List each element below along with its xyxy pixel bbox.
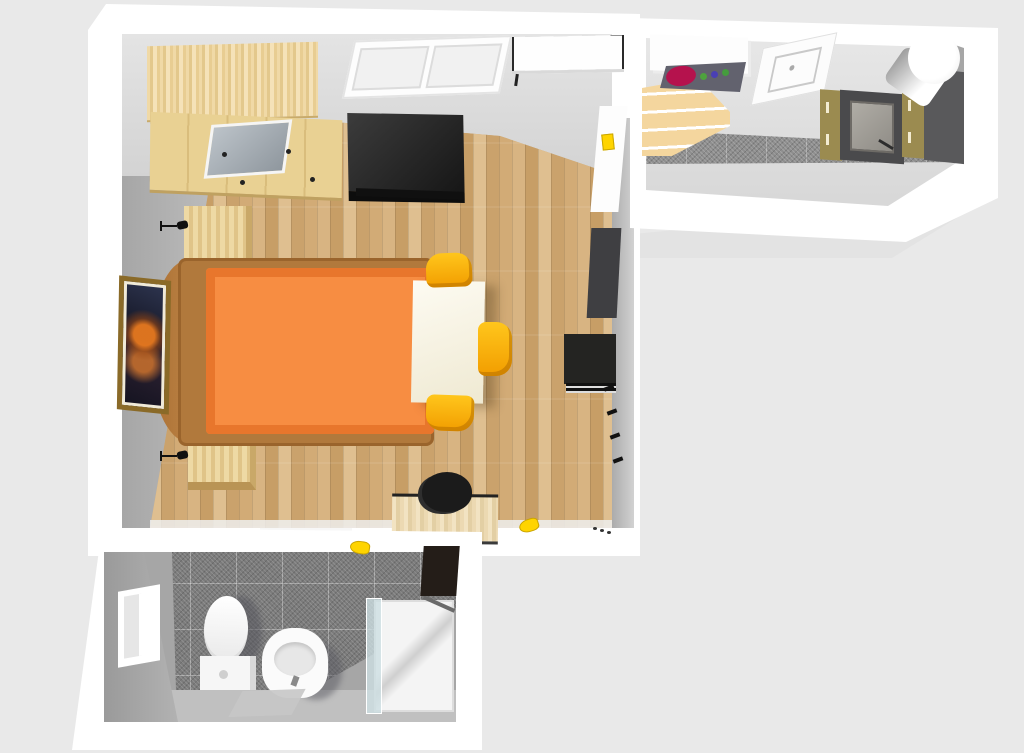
cabinet-handle	[908, 132, 911, 143]
dining-table[interactable]	[411, 280, 485, 403]
oven[interactable]	[840, 90, 904, 164]
table-lamp[interactable]	[160, 218, 192, 234]
shower-tray	[374, 600, 454, 712]
double-bed[interactable]	[150, 256, 434, 448]
lamp-head	[176, 450, 188, 460]
shoe	[593, 527, 597, 530]
floorplan-scene	[0, 0, 1024, 753]
tall-shelf[interactable]	[587, 228, 622, 318]
cooktop-knob[interactable]	[722, 69, 729, 76]
toilet-cistern	[200, 656, 256, 690]
bathroom-window[interactable]	[118, 584, 160, 667]
lamp-stem	[162, 455, 177, 457]
lamp-stem	[162, 225, 177, 227]
wardrobe-knob	[286, 149, 291, 154]
wardrobe-top[interactable]	[147, 42, 318, 122]
cabinet-handle	[826, 102, 829, 113]
wardrobe-mirror	[204, 119, 293, 178]
bedroom-window[interactable]	[342, 35, 512, 99]
kitchen-cabinet-left[interactable]	[820, 89, 842, 161]
water-boiler[interactable]	[908, 32, 960, 84]
chair-top[interactable]	[425, 252, 472, 288]
table-lamp[interactable]	[160, 448, 192, 464]
shower-glass-panel	[366, 598, 382, 714]
bathroom-cabinet[interactable]	[420, 546, 459, 596]
chair-right[interactable]	[478, 322, 512, 376]
lamp-head	[176, 220, 188, 230]
window-pane	[124, 593, 142, 658]
window-pane	[352, 46, 429, 91]
light-switch[interactable]	[601, 133, 615, 150]
flush-button[interactable]	[219, 670, 228, 679]
shower[interactable]	[366, 596, 458, 716]
bedroom-baseboard	[150, 520, 612, 528]
wall-cabinet[interactable]	[512, 35, 624, 74]
wardrobe-knob	[222, 152, 227, 157]
sink-basin	[767, 47, 822, 93]
cabinet-handle	[908, 100, 911, 111]
chair-bottom[interactable]	[425, 394, 474, 432]
wardrobe-knob	[240, 180, 245, 185]
wardrobe-knob	[310, 177, 315, 182]
shoe	[607, 531, 611, 534]
bed-orange-cover	[206, 268, 434, 434]
window-pane	[425, 43, 502, 88]
bidet-bowl	[274, 642, 316, 676]
cooktop-knob[interactable]	[700, 73, 707, 80]
cooktop-knob[interactable]	[711, 71, 718, 78]
cabinet-handle	[826, 134, 829, 145]
butterfly-picture[interactable]	[117, 275, 171, 414]
stereo-cabinet[interactable]	[564, 334, 616, 384]
shoe	[600, 529, 604, 532]
office-chair[interactable]	[422, 472, 472, 512]
toilet[interactable]	[198, 594, 262, 694]
